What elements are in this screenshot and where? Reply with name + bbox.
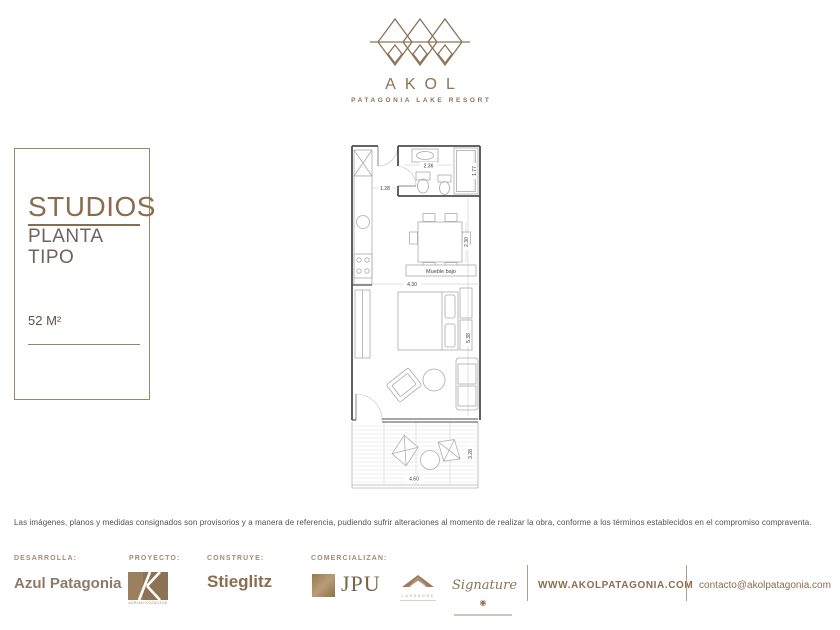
svg-text:Mueble bajo: Mueble bajo (426, 269, 456, 275)
area-rule (28, 344, 140, 345)
svg-text:5.38: 5.38 (466, 333, 472, 343)
mueble-bajo: Mueble bajo (406, 265, 476, 276)
svg-text:4.60: 4.60 (409, 477, 419, 483)
plan-subtitle: PLANTA TIPO (28, 227, 149, 269)
brochure-page: AKOL PATAGONIA LAKE RESORT STUDIOS PLANT… (0, 0, 840, 630)
svg-text:3.28: 3.28 (468, 449, 474, 459)
diamonds-logo-icon (370, 16, 470, 72)
svg-text:4.30: 4.30 (407, 282, 417, 288)
builder-name: Stieglitz (207, 572, 272, 592)
bathroom (412, 148, 478, 195)
dining-set (410, 214, 471, 271)
email-link[interactable]: contacto@akolpatagonia.com (698, 580, 832, 591)
developer-name: Azul Patagonia (14, 575, 122, 592)
plan-title: STUDIOS (28, 193, 149, 221)
info-panel: STUDIOS PLANTA TIPO 52 M² (14, 148, 150, 400)
project-label: PROYECTO: (129, 555, 180, 562)
architect-logo-icon (128, 572, 168, 600)
signature-logo: Signature ◉ (452, 576, 514, 616)
footer-divider-2 (686, 565, 687, 601)
cassagne-subline (400, 600, 436, 601)
brand-tagline: PATAGONIA LAKE RESORT (349, 97, 492, 104)
builder-label: CONSTRUYE: (207, 555, 264, 562)
cassagne-logo: CASSAGNE (396, 573, 440, 601)
bed (398, 288, 472, 350)
plan-area: 52 M² (28, 313, 149, 328)
jpu-logo-icon (312, 574, 335, 597)
footer-divider-1 (527, 565, 528, 601)
wardrobe (355, 290, 370, 358)
deck-furniture (390, 434, 462, 469)
svg-text:1.28: 1.28 (380, 186, 390, 192)
signature-caption (454, 614, 512, 616)
svg-text:2.30: 2.30 (464, 237, 470, 247)
jpu-name: JPU (341, 571, 381, 597)
architect-caption: ADRIAN KOZACZUK (122, 601, 174, 605)
signature-name: Signature (452, 578, 517, 593)
kitchen (354, 150, 372, 285)
signature-seal-icon: ◉ (480, 598, 487, 607)
cassagne-name: CASSAGNE (396, 594, 440, 598)
disclaimer-text: Las imágenes, planos y medidas consignad… (14, 518, 826, 527)
svg-text:1.77: 1.77 (472, 166, 478, 176)
developer-label: DESARROLLA: (14, 555, 77, 562)
living (386, 358, 478, 410)
mountain-icon (400, 573, 436, 588)
floor-plan: Mueble bajo (346, 138, 490, 494)
commercial-label: COMERCIALIZAN: (311, 555, 387, 562)
brand-logo: AKOL PATAGONIA LAKE RESORT (0, 16, 840, 104)
svg-text:2.36: 2.36 (424, 163, 434, 169)
brand-name: AKOL (376, 76, 464, 94)
website-link[interactable]: WWW.AKOLPATAGONIA.COM (538, 580, 678, 591)
